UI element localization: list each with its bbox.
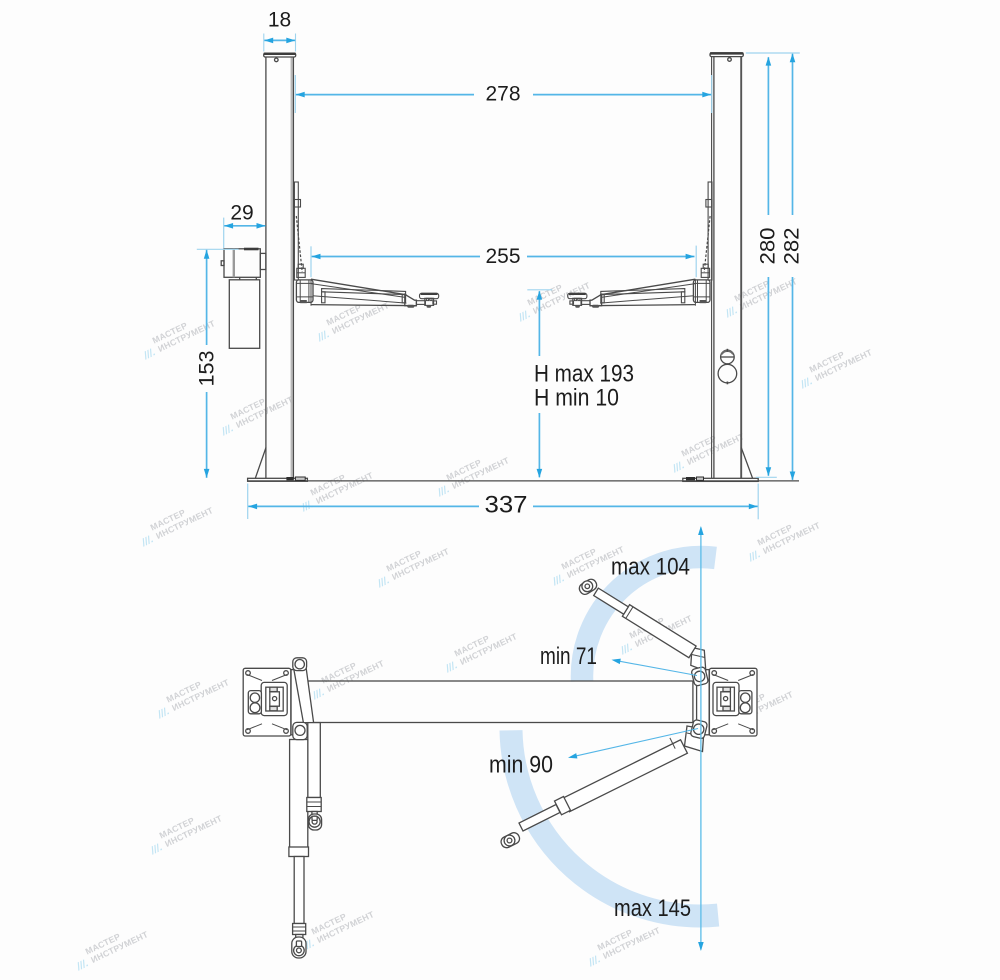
- svg-text:337: 337: [485, 492, 528, 519]
- svg-text:255: 255: [485, 245, 520, 268]
- svg-text:18: 18: [268, 9, 291, 32]
- svg-text:H min 10: H min 10: [534, 385, 619, 412]
- svg-text:min 90: min 90: [489, 752, 553, 779]
- svg-text:280: 280: [756, 228, 779, 265]
- svg-text:min 71: min 71: [540, 643, 597, 670]
- svg-text:H max 193: H max 193: [534, 361, 634, 388]
- svg-text:max 145: max 145: [614, 895, 691, 922]
- svg-text:278: 278: [485, 83, 520, 106]
- svg-text:153: 153: [196, 351, 219, 387]
- svg-text:282: 282: [781, 228, 804, 265]
- svg-text:max 104: max 104: [611, 554, 690, 581]
- svg-text:29: 29: [230, 202, 253, 225]
